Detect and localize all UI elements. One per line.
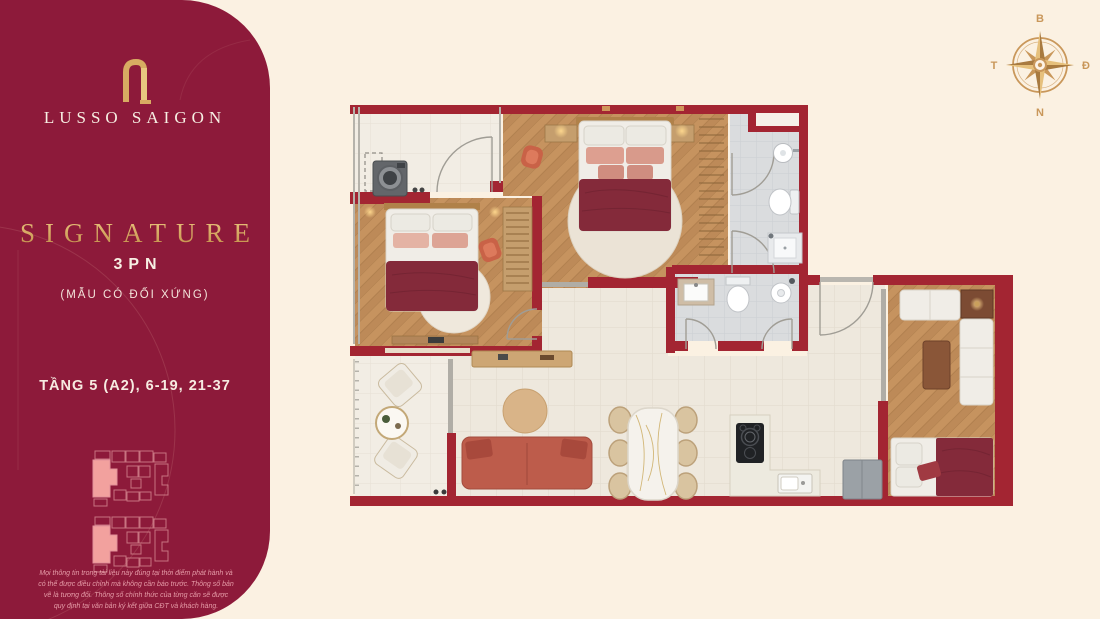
wall-sconce-icon bbox=[364, 206, 376, 218]
washing-machine-icon bbox=[373, 161, 407, 196]
compass-south-label: N bbox=[1036, 107, 1044, 118]
ac-control-icon bbox=[602, 106, 610, 111]
coffee-table bbox=[376, 407, 408, 439]
compass-north-label: B bbox=[1036, 13, 1044, 25]
tap-icon bbox=[413, 188, 418, 193]
mirror-note: (MẪU CÓ ĐỐI XỨNG) bbox=[0, 289, 270, 301]
bed-double bbox=[384, 203, 480, 311]
brand-panel: LUSSO SAIGON SIGNATURE 3PN (MẪU CÓ ĐỐI X… bbox=[0, 0, 270, 619]
compass-west-label: T bbox=[991, 60, 998, 72]
bedroom-count: 3PN bbox=[0, 256, 270, 274]
brand-name: LUSSO SAIGON bbox=[0, 108, 270, 128]
marble-dining-table bbox=[628, 408, 678, 500]
entry-hall-floor bbox=[807, 285, 885, 359]
master-sliding-door bbox=[542, 282, 588, 287]
kitchen-sink-icon bbox=[778, 474, 812, 493]
floor-plan bbox=[340, 93, 1020, 523]
vanity-sink-icon bbox=[678, 279, 714, 305]
entry-threshold bbox=[820, 277, 873, 282]
balcony-sliding-door bbox=[448, 359, 453, 433]
sofa bbox=[462, 437, 592, 489]
legal-disclaimer: Mọi thông tin trong tài liệu này đúng tạ… bbox=[38, 569, 234, 612]
highlighted-unit bbox=[93, 526, 117, 563]
layout-title: SIGNATURE bbox=[0, 218, 270, 249]
floor-drain-icon bbox=[442, 490, 447, 495]
single-bed bbox=[891, 438, 993, 496]
toilet-icon bbox=[769, 189, 799, 215]
sofa-right bbox=[960, 319, 993, 405]
ac-control-icon bbox=[676, 106, 684, 111]
floor-range: TẦNG 5 (A2), 6-19, 21-37 bbox=[0, 378, 270, 394]
wood-table bbox=[923, 341, 950, 389]
keyplan-upper bbox=[85, 447, 185, 511]
dining-area bbox=[609, 407, 697, 500]
fridge-icon bbox=[843, 460, 882, 499]
compass-east-label: Đ bbox=[1082, 60, 1090, 72]
drain-icon bbox=[420, 188, 425, 193]
cooktop-icon bbox=[736, 423, 764, 463]
floor-drain-icon bbox=[434, 490, 439, 495]
page: LUSSO SAIGON SIGNATURE 3PN (MẪU CÓ ĐỐI X… bbox=[0, 0, 1100, 619]
tv-console bbox=[472, 351, 572, 367]
wall-sconce-icon bbox=[489, 206, 501, 218]
bedroom1-window bbox=[385, 348, 470, 353]
highlighted-unit bbox=[93, 460, 117, 497]
toilet-icon bbox=[726, 277, 750, 312]
table-lamp-icon bbox=[554, 124, 568, 138]
hallway-floor bbox=[542, 288, 668, 358]
plant-icon bbox=[382, 415, 390, 423]
lusso-monogram-icon bbox=[0, 56, 270, 108]
bedroom3-sliding-door bbox=[881, 289, 886, 401]
round-jute-rug bbox=[503, 389, 547, 433]
bed-double bbox=[576, 117, 674, 231]
keyplan-lower bbox=[85, 513, 185, 577]
bathroom-window-niche bbox=[756, 113, 800, 126]
table-lamp-icon bbox=[675, 124, 689, 138]
shower-icon bbox=[768, 233, 802, 263]
